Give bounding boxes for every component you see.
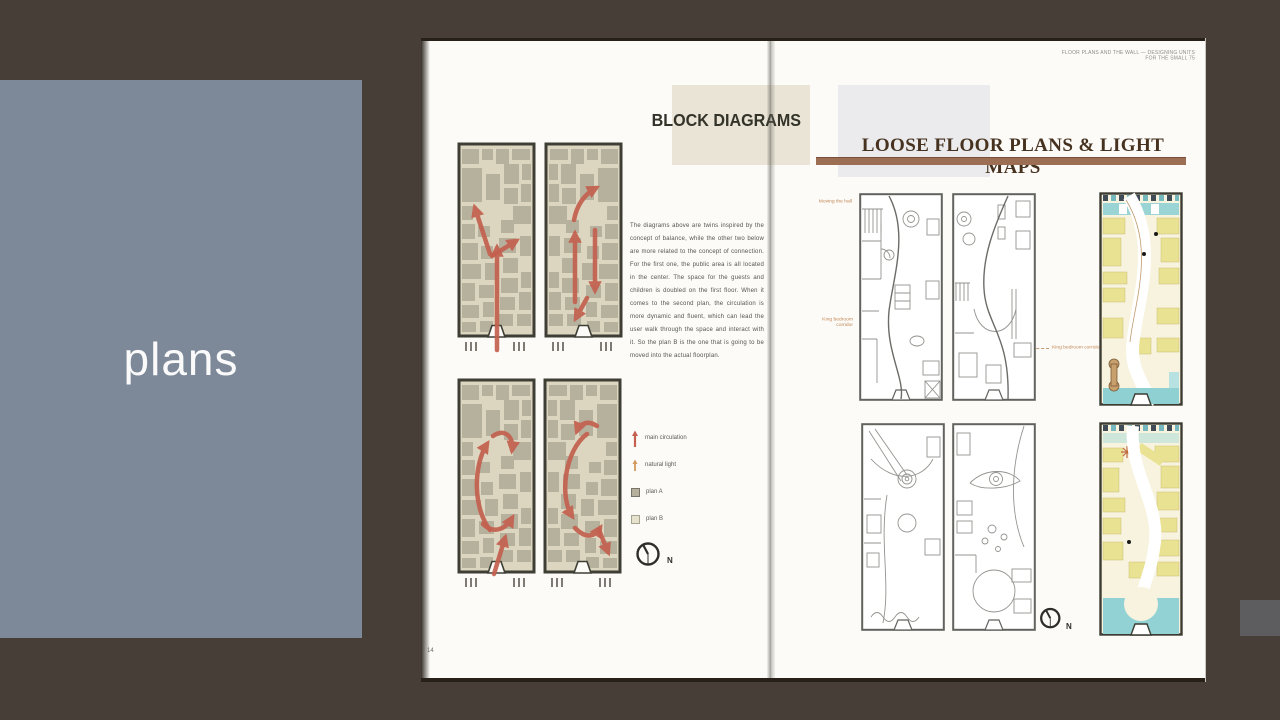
- light-swatch-icon: [631, 515, 640, 524]
- block-plan-2: [544, 142, 624, 356]
- block-plan-1: [457, 142, 537, 356]
- book-spine: [767, 38, 775, 682]
- legend-label: main circulation: [645, 435, 687, 441]
- compass-north-label: N: [1066, 622, 1072, 631]
- legend-item-plan-b: plan B: [631, 511, 751, 527]
- slide-title: plans: [124, 332, 239, 386]
- header-accent-bar: [816, 157, 1186, 165]
- legend-item-circulation: main circulation: [631, 430, 751, 446]
- floor-plan-light-map-2: [1099, 422, 1183, 640]
- dark-swatch-icon: [631, 488, 640, 497]
- image-bottom-edge: [421, 678, 1205, 682]
- red-arrow-icon: [631, 430, 639, 447]
- compass-icon: [635, 540, 665, 570]
- floor-plan-light-map-1: [1099, 192, 1183, 410]
- floor-plan-line-4: [952, 423, 1036, 637]
- floor-plan-line-3: [861, 423, 945, 637]
- slide-title-panel: plans: [0, 80, 362, 638]
- annotation-1: Moving the hall: [808, 198, 852, 204]
- left-page-body-text: The diagrams above are twins inspired by…: [630, 220, 764, 363]
- annotation-2: King bedroom corridor: [806, 316, 853, 327]
- legend-item-plan-a: plan A: [631, 484, 751, 500]
- block-plan-4: [543, 378, 623, 592]
- page-edge-shadow: [421, 38, 430, 682]
- left-page-header: BLOCK DIAGRAMS: [648, 110, 801, 131]
- gray-fragment: [1240, 600, 1280, 636]
- legend: main circulation natural light plan A pl…: [631, 430, 751, 538]
- legend-label: natural light: [645, 462, 676, 468]
- image-top-edge: [421, 38, 1205, 41]
- legend-item-natural-light: natural light: [631, 457, 751, 473]
- compass-north-label: N: [667, 556, 673, 565]
- running-header: FLOOR PLANS AND THE WALL — DESIGNING UNI…: [1055, 50, 1195, 61]
- compass-icon: [1039, 606, 1065, 632]
- legend-label: plan B: [646, 516, 663, 522]
- floor-plan-line-2: [952, 193, 1036, 407]
- floor-plan-line-1: [859, 193, 943, 407]
- portfolio-spread-image: BLOCK DIAGRAMS The diagrams above are tw…: [421, 38, 1206, 682]
- slide-background: plans: [0, 0, 1280, 720]
- block-plan-3: [457, 378, 537, 592]
- orange-arrow-icon: [631, 459, 639, 471]
- legend-label: plan A: [646, 489, 663, 495]
- page-number: 14: [427, 648, 434, 654]
